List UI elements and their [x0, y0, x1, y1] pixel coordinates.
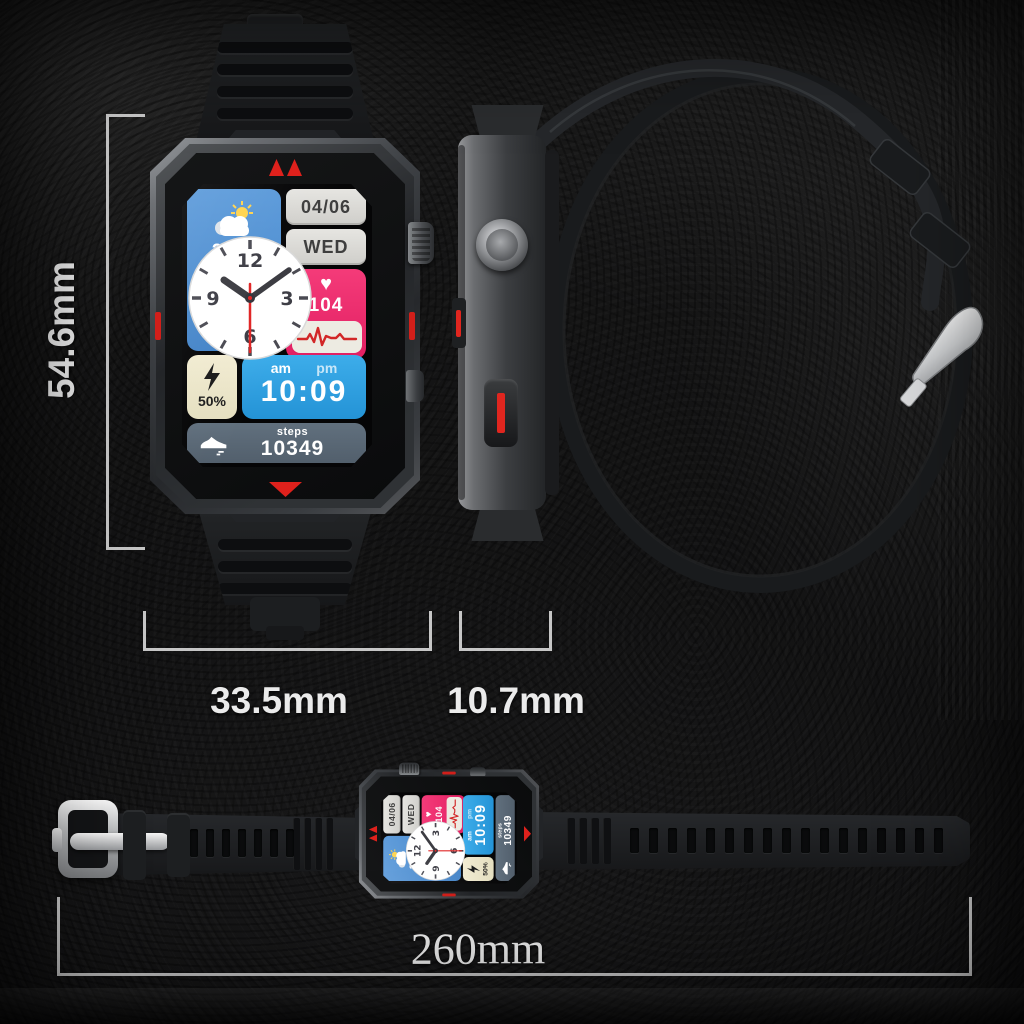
- running-shoe-icon: [199, 430, 229, 456]
- thickness-dimension-label: 10.7mm: [447, 680, 585, 722]
- red-side-accent-right: [409, 312, 415, 340]
- steps-tile: steps 10349: [187, 423, 366, 463]
- time-value: 10:09: [242, 375, 366, 409]
- band-length-dimension-label: 260mm: [411, 924, 545, 975]
- steps-label: steps: [229, 427, 356, 438]
- analog-clock: 12 3 6 9: [403, 818, 468, 883]
- battery-value: 50%: [481, 857, 489, 881]
- strap-hole: [801, 828, 810, 853]
- date-tile: 04/06: [383, 795, 400, 833]
- clock-numeral-9: 9: [432, 865, 442, 871]
- side-button: [470, 767, 485, 776]
- strap-ridge: [217, 108, 354, 119]
- strap-ridge: [218, 561, 352, 572]
- watch-head-front-view: 24°C 04/06 WED ♥ 104 50%: [150, 138, 420, 514]
- strap-ridge: [218, 539, 352, 550]
- pm-label: pm: [316, 360, 337, 376]
- case-width-dimension-label: 33.5mm: [210, 680, 348, 722]
- steps-tile: steps 10349: [496, 795, 515, 881]
- strap-hole: [254, 829, 262, 857]
- crown-button: [408, 222, 434, 264]
- red-side-accent-right: [442, 772, 455, 775]
- strap-hole: [190, 829, 198, 857]
- buckle-hinge: [52, 828, 62, 852]
- clock-numeral-12: 12: [414, 844, 424, 857]
- strap-ridge: [579, 818, 587, 864]
- side-button: [406, 370, 424, 402]
- strap-hole: [744, 828, 753, 853]
- strap-hole: [820, 828, 829, 853]
- side-pusher: [452, 298, 466, 348]
- strap-hole: [668, 828, 677, 853]
- watch-head-band-view-face: 24°C 04/06 WED ♥ 104 50%: [359, 769, 539, 899]
- watch-screen: 24°C 04/06 WED ♥ 104 50%: [182, 184, 372, 467]
- red-side-accent-left: [442, 894, 455, 897]
- product-spec-image: 24°C 04/06 WED ♥ 104 50%: [0, 0, 1024, 1024]
- clock-numeral-3: 3: [432, 830, 442, 836]
- battery-value: 50%: [187, 393, 237, 409]
- strap-hole: [839, 828, 848, 853]
- strap-hole: [915, 828, 924, 853]
- strap-hole: [649, 828, 658, 853]
- strap-hole: [222, 829, 230, 857]
- strap-hole: [877, 828, 886, 853]
- time-value: 10:09: [473, 795, 489, 855]
- clock-numeral-12: 12: [237, 250, 263, 272]
- strap-ridge: [217, 86, 354, 97]
- strap-ridge: [217, 42, 354, 53]
- band-strap-right: [530, 812, 970, 870]
- side-pusher-red-slit: [456, 310, 461, 337]
- strap-keeper: [123, 810, 146, 880]
- watch-screen: 24°C 04/06 WED ♥ 104 50%: [381, 792, 517, 883]
- strap-hole: [206, 829, 214, 857]
- red-triangle-icon: [369, 834, 377, 841]
- side-case-body: [458, 135, 546, 510]
- buckle-pin: [70, 833, 170, 850]
- red-side-accent-left: [155, 312, 161, 340]
- strap-hole: [286, 829, 294, 857]
- clock-center-dot: [248, 296, 252, 300]
- strap-hole: [270, 829, 278, 857]
- strap-hole: [725, 828, 734, 853]
- red-triangle-icon: [369, 826, 377, 833]
- strap-hole: [687, 828, 696, 853]
- strap-hole: [782, 828, 791, 853]
- watch-head-band-view: 24°C 04/06 WED ♥ 104 50%: [355, 763, 543, 905]
- height-bracket: [106, 114, 145, 550]
- case-width-bracket: [143, 611, 432, 651]
- strap-ridge: [304, 818, 311, 870]
- strap-ridge: [326, 818, 333, 870]
- clock-center-dot: [435, 850, 437, 852]
- strap-hole: [706, 828, 715, 853]
- floor-edge: [0, 988, 1024, 1024]
- steps-value: 10349: [229, 438, 356, 460]
- crown-button: [399, 762, 419, 774]
- side-lug-bottom: [470, 507, 545, 541]
- strap-ridge: [567, 818, 575, 864]
- lightning-bolt-icon: [202, 362, 222, 392]
- red-logo-accent: [269, 159, 302, 176]
- strap-ridge: [293, 818, 300, 870]
- red-logo-accent: [369, 826, 377, 842]
- strap-ridge: [603, 818, 611, 864]
- strap-hole: [630, 828, 639, 853]
- crown-side-view: [476, 219, 528, 271]
- side-red-button: [484, 379, 518, 447]
- strap-hole: [896, 828, 905, 853]
- strap-keeper: [167, 813, 190, 877]
- red-triangle-icon: [287, 159, 302, 176]
- thickness-bracket: [459, 611, 552, 651]
- strap-ridge: [315, 818, 322, 870]
- clock-numeral-9: 9: [206, 288, 219, 310]
- date-tile: 04/06: [286, 189, 366, 225]
- side-lug-top: [470, 105, 545, 139]
- strap-hole: [934, 828, 943, 853]
- side-red-button-bar: [497, 393, 505, 433]
- buckle-tongue: [891, 301, 992, 413]
- strap-hole: [238, 829, 246, 857]
- height-dimension-label: 54.6mm: [41, 261, 83, 399]
- watch-side-view: [450, 105, 570, 555]
- side-case-back: [545, 150, 559, 495]
- strap-hole: [858, 828, 867, 853]
- clock-numeral-3: 3: [280, 288, 293, 310]
- strap-ridge: [591, 818, 599, 864]
- steps-value: 10349: [503, 800, 514, 861]
- strap-ridge: [218, 583, 352, 594]
- strap-ridge: [217, 64, 354, 75]
- red-triangle-icon: [269, 159, 284, 176]
- strap-hole: [763, 828, 772, 853]
- analog-clock: 12 3 6 9: [182, 230, 318, 366]
- lightning-bolt-icon: [466, 864, 480, 874]
- running-shoe-icon: [499, 861, 511, 875]
- front-top-strap: [195, 24, 375, 146]
